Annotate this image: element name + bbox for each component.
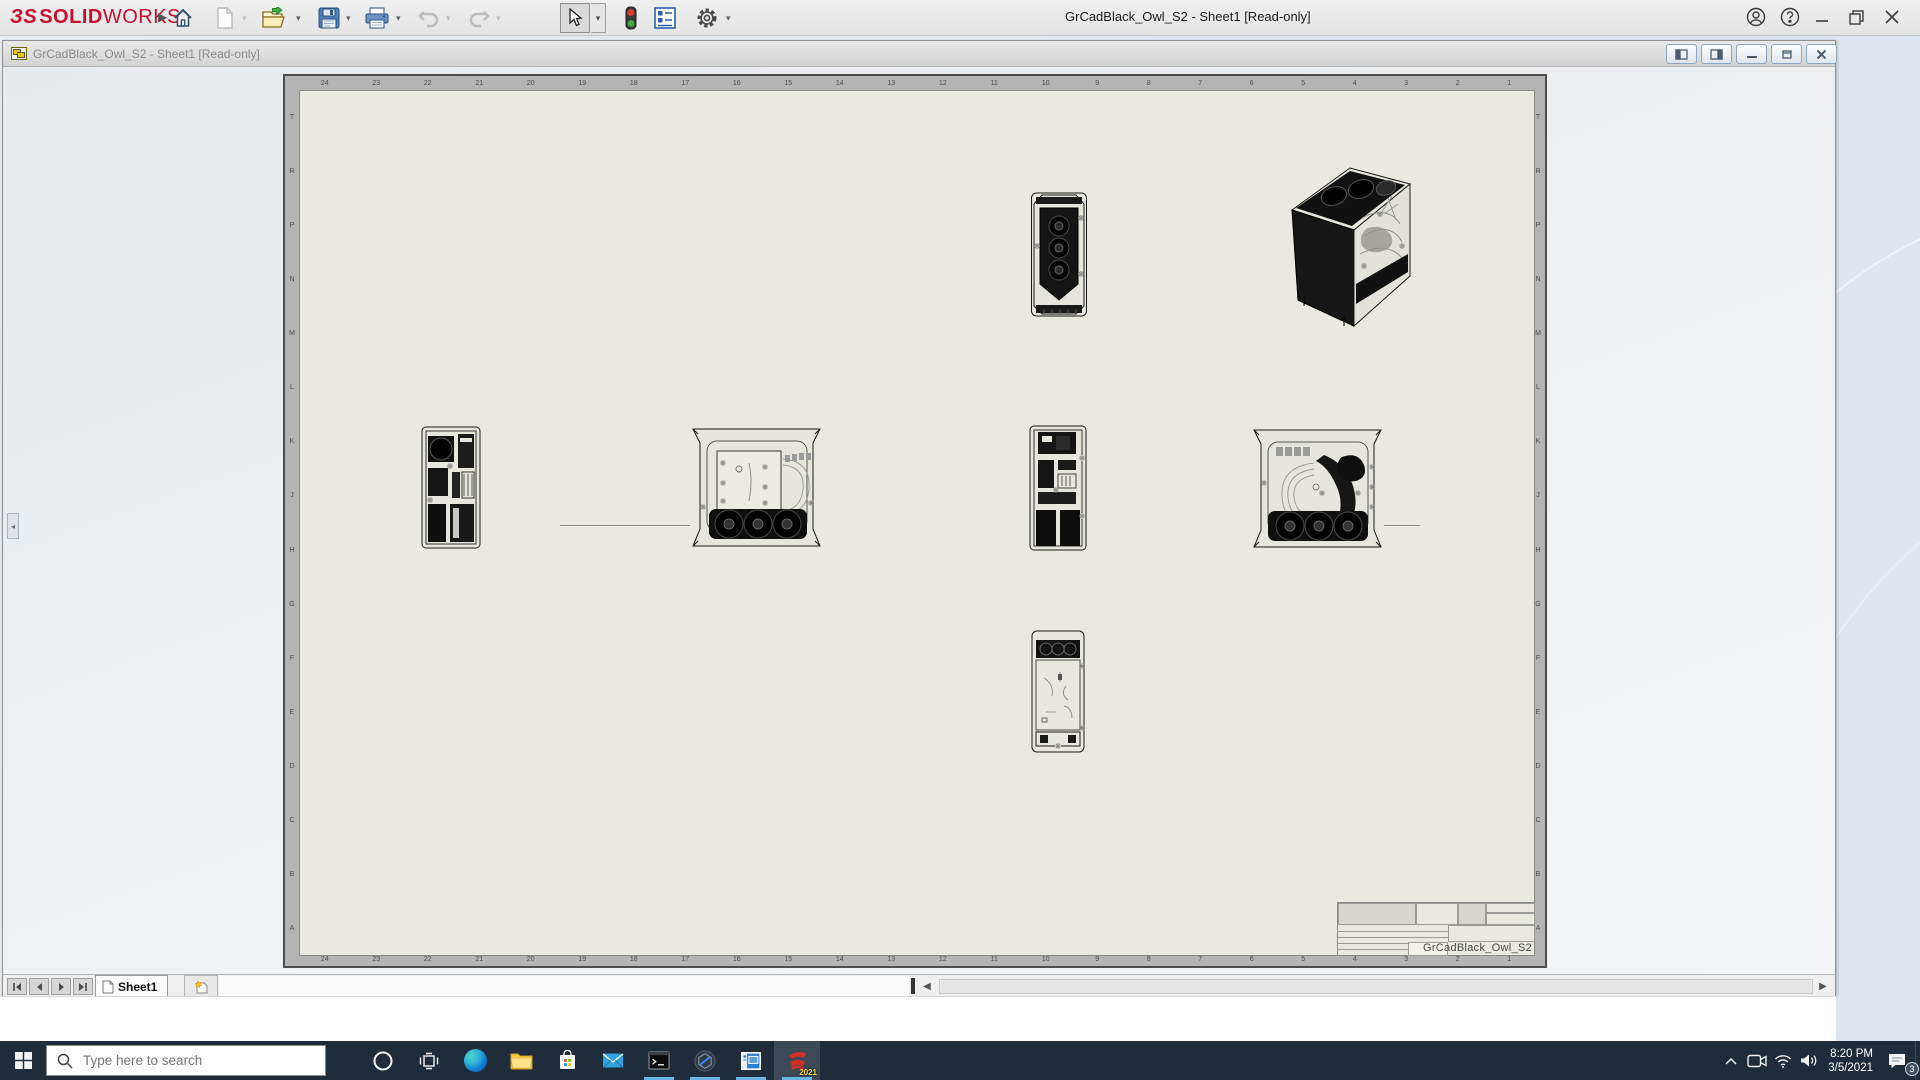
zone-label: R bbox=[285, 144, 299, 198]
settings-dropdown-icon[interactable]: ▾ bbox=[726, 13, 731, 24]
open-button[interactable] bbox=[262, 5, 288, 31]
zone-label: 24 bbox=[299, 76, 351, 90]
logo-mark: ЗS bbox=[10, 6, 37, 28]
title-block-cell bbox=[1486, 903, 1535, 913]
wifi-icon[interactable] bbox=[1770, 1041, 1796, 1080]
side-view-b[interactable] bbox=[1250, 423, 1386, 553]
zone-label: 7 bbox=[1175, 76, 1227, 90]
volume-icon[interactable] bbox=[1796, 1041, 1822, 1080]
solidworks-year-label: 2021 bbox=[799, 1068, 817, 1077]
add-sheet-button[interactable] bbox=[184, 975, 218, 997]
first-sheet-button[interactable] bbox=[7, 978, 27, 995]
zone-label: B bbox=[285, 848, 299, 902]
zone-label: A bbox=[285, 902, 299, 956]
drawing-document-icon bbox=[11, 47, 27, 60]
cortana-button[interactable] bbox=[360, 1041, 406, 1080]
store-icon[interactable] bbox=[544, 1041, 590, 1080]
restore-icon[interactable] bbox=[1842, 4, 1870, 30]
options-form-icon[interactable] bbox=[652, 5, 678, 31]
taskbar-clock[interactable]: 8:20 PM 3/5/2021 bbox=[1822, 1047, 1879, 1075]
zone-label: 10 bbox=[1020, 76, 1072, 90]
next-sheet-button[interactable] bbox=[51, 978, 71, 995]
zone-label: 4 bbox=[1329, 76, 1381, 90]
zone-label: 5 bbox=[1278, 76, 1330, 90]
action-center-button[interactable]: 3 bbox=[1879, 1041, 1915, 1080]
screen: ЗSSOLIDWORKS ▶ ▾ ▾ ▾ ▾ ▾ ▾ bbox=[0, 0, 1920, 1080]
zone-label: N bbox=[285, 252, 299, 306]
zone-label: 11 bbox=[969, 76, 1021, 90]
meet-now-icon[interactable] bbox=[1744, 1041, 1770, 1080]
title-block-name: GrCadBlack_Owl_S2 bbox=[1423, 942, 1532, 954]
clock-time: 8:20 PM bbox=[1828, 1047, 1873, 1061]
drawing-viewport[interactable]: ◂ 24232221201918171615141312111098765432… bbox=[3, 67, 1835, 974]
title-block-line bbox=[1338, 937, 1448, 938]
zone-label: F bbox=[285, 631, 299, 685]
help-icon[interactable] bbox=[1776, 4, 1804, 30]
doc-close-icon[interactable] bbox=[1806, 44, 1837, 64]
collapsed-panel-tab[interactable]: ◂ bbox=[7, 513, 19, 539]
hscroll-left-arrow[interactable]: ◀ bbox=[917, 978, 937, 995]
tab-scrollbar-splitter[interactable] bbox=[911, 978, 915, 994]
select-tool-button[interactable] bbox=[560, 3, 590, 33]
sheet-tab-label: Sheet1 bbox=[118, 980, 157, 994]
app-title: GrCadBlack_Owl_S2 - Sheet1 [Read-only] bbox=[1065, 9, 1311, 24]
settings-gear-icon[interactable] bbox=[694, 5, 720, 31]
zone-label: 14 bbox=[814, 76, 866, 90]
drawing-sheet[interactable]: 242322212019181716151413121110987654321 … bbox=[283, 74, 1547, 968]
zone-label: 22 bbox=[402, 76, 454, 90]
undo-dropdown-icon[interactable]: ▾ bbox=[446, 13, 451, 24]
blue-window-app-icon[interactable] bbox=[728, 1041, 774, 1080]
redo-dropdown-icon[interactable]: ▾ bbox=[496, 13, 501, 24]
title-block: GrCadBlack_Owl_S2 bbox=[1337, 902, 1534, 955]
centerline bbox=[560, 525, 690, 526]
zone-label: L bbox=[285, 361, 299, 415]
logo-solid: SOLID bbox=[39, 6, 103, 28]
edge-icon[interactable] bbox=[452, 1041, 498, 1080]
sheet-tab-bar: Sheet1 ◀ ▶ bbox=[3, 974, 1835, 997]
minimize-icon[interactable] bbox=[1808, 4, 1836, 30]
zone-label: 16 bbox=[711, 76, 763, 90]
title-block-cell bbox=[1338, 903, 1416, 925]
zone-label: 8 bbox=[1123, 76, 1175, 90]
zone-label: J bbox=[285, 469, 299, 523]
tab-bar-empty-area bbox=[219, 976, 909, 997]
front-center-view[interactable] bbox=[1028, 424, 1088, 552]
document-window: GrCadBlack_Owl_S2 - Sheet1 [Read-only] ◂… bbox=[2, 40, 1836, 996]
zone-label: T bbox=[285, 90, 299, 144]
account-icon[interactable] bbox=[1742, 4, 1770, 30]
clock-date: 3/5/2021 bbox=[1828, 1061, 1873, 1075]
new-document-dropdown-icon[interactable]: ▾ bbox=[242, 13, 247, 24]
mail-icon[interactable] bbox=[590, 1041, 636, 1080]
hexagon-app-icon[interactable] bbox=[682, 1041, 728, 1080]
save-button[interactable] bbox=[316, 5, 342, 31]
rear-view[interactable] bbox=[420, 424, 482, 551]
start-button[interactable] bbox=[0, 1041, 46, 1080]
zone-label: 3 bbox=[1381, 76, 1433, 90]
front-top-view[interactable] bbox=[1030, 188, 1088, 321]
terminal-icon[interactable] bbox=[636, 1041, 682, 1080]
new-document-button[interactable] bbox=[212, 5, 238, 31]
title-block-cell bbox=[1416, 903, 1458, 925]
doc-minimize-icon[interactable] bbox=[1736, 44, 1767, 64]
centerline bbox=[1384, 525, 1420, 526]
zone-label: 20 bbox=[505, 76, 557, 90]
document-title-bar[interactable]: GrCadBlack_Owl_S2 - Sheet1 [Read-only] bbox=[3, 41, 1835, 67]
title-block-cell bbox=[1448, 925, 1535, 942]
zone-label: 23 bbox=[351, 76, 403, 90]
zone-label: G bbox=[285, 577, 299, 631]
zone-label: H bbox=[285, 523, 299, 577]
notification-badge: 3 bbox=[1905, 1062, 1919, 1076]
tray-chevron-icon[interactable] bbox=[1718, 1041, 1744, 1080]
save-dropdown-icon[interactable]: ▾ bbox=[346, 13, 351, 24]
print-button[interactable] bbox=[364, 5, 390, 31]
select-tool-dropdown-icon[interactable]: ▾ bbox=[591, 3, 606, 33]
zone-label: 9 bbox=[1072, 76, 1124, 90]
zone-label: 13 bbox=[866, 76, 918, 90]
zone-label: 15 bbox=[763, 76, 815, 90]
title-block-cell bbox=[1458, 903, 1486, 925]
zone-label: 1 bbox=[1484, 76, 1536, 90]
file-explorer-icon[interactable] bbox=[498, 1041, 544, 1080]
search-input[interactable] bbox=[81, 1052, 311, 1069]
doc-restore-icon[interactable] bbox=[1771, 44, 1802, 64]
title-block-cell bbox=[1486, 913, 1535, 925]
sheet-inner-area[interactable]: GrCadBlack_Owl_S2 bbox=[299, 90, 1535, 956]
zone-label: D bbox=[285, 740, 299, 794]
zone-label: 21 bbox=[454, 76, 506, 90]
zone-strip-top: 242322212019181716151413121110987654321 bbox=[299, 76, 1535, 90]
hscroll-right-arrow[interactable]: ▶ bbox=[1813, 978, 1833, 995]
taskbar-search[interactable] bbox=[46, 1045, 326, 1076]
isometric-view[interactable] bbox=[1284, 158, 1416, 348]
print-dropdown-icon[interactable]: ▾ bbox=[396, 13, 401, 24]
hscroll-track[interactable] bbox=[939, 979, 1813, 994]
zone-label: C bbox=[285, 794, 299, 848]
zone-label: 12 bbox=[917, 76, 969, 90]
title-block-line bbox=[1338, 931, 1448, 932]
open-dropdown-icon[interactable]: ▾ bbox=[296, 13, 301, 24]
zone-label: 6 bbox=[1226, 76, 1278, 90]
taskbar: 2021 8:20 PM 3/5/2021 3 bbox=[0, 1041, 1920, 1080]
zone-label: 2 bbox=[1432, 76, 1484, 90]
tab-sheet1[interactable]: Sheet1 bbox=[95, 975, 168, 997]
app-title-bar: ЗSSOLIDWORKS ▶ ▾ ▾ ▾ ▾ ▾ ▾ bbox=[0, 0, 1920, 36]
solidworks-icon[interactable]: 2021 bbox=[774, 1041, 820, 1080]
side-view-a[interactable] bbox=[687, 423, 826, 552]
zone-label: 17 bbox=[660, 76, 712, 90]
search-icon bbox=[57, 1053, 73, 1069]
zone-label: E bbox=[285, 685, 299, 739]
zone-label: P bbox=[285, 198, 299, 252]
toolbar-flyout-arrow[interactable]: ▶ bbox=[158, 10, 167, 24]
last-sheet-button[interactable] bbox=[73, 978, 93, 995]
close-icon[interactable] bbox=[1878, 4, 1906, 30]
solidworks-logo: ЗSSOLIDWORKS bbox=[10, 6, 181, 29]
zone-label: 19 bbox=[557, 76, 609, 90]
document-title: GrCadBlack_Owl_S2 - Sheet1 [Read-only] bbox=[33, 47, 260, 61]
home-button[interactable] bbox=[170, 5, 196, 31]
zone-strip-left: TRPNMLKJHGFEDCBA bbox=[285, 90, 299, 956]
zone-label: M bbox=[285, 307, 299, 361]
zone-label: K bbox=[285, 415, 299, 469]
previous-sheet-button[interactable] bbox=[29, 978, 49, 995]
pane-left-icon[interactable] bbox=[1666, 44, 1697, 64]
undo-button[interactable] bbox=[416, 5, 442, 31]
pane-right-icon[interactable] bbox=[1701, 44, 1732, 64]
status-strip bbox=[0, 996, 1836, 1041]
rebuild-traffic-light-icon[interactable] bbox=[618, 5, 644, 31]
task-view-button[interactable] bbox=[406, 1041, 452, 1080]
bottom-view[interactable] bbox=[1030, 628, 1086, 755]
redo-button[interactable] bbox=[466, 5, 492, 31]
zone-label: 18 bbox=[608, 76, 660, 90]
